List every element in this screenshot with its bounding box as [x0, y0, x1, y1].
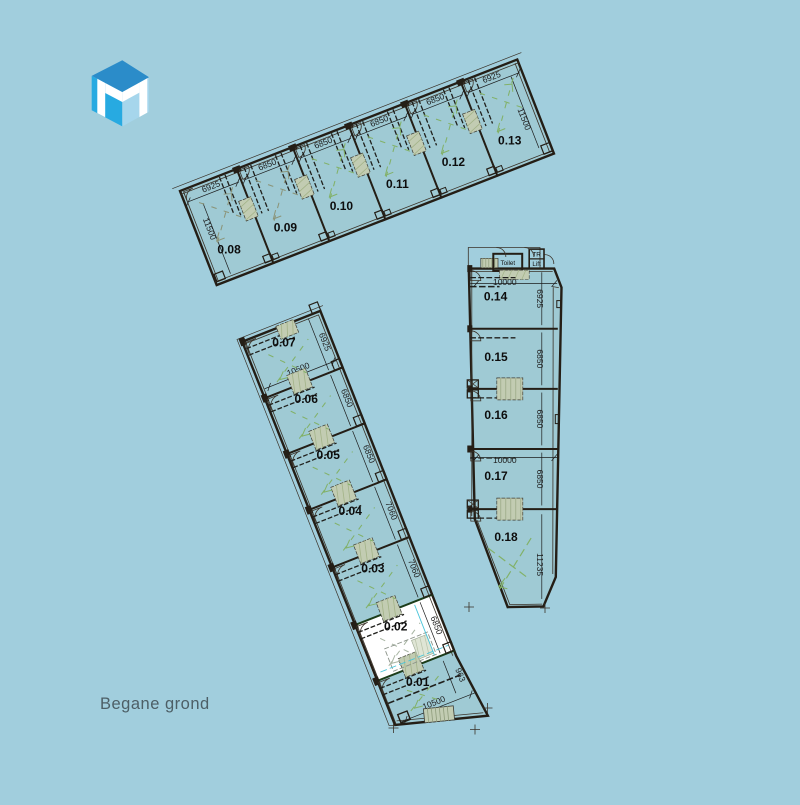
svg-text:Toilet: Toilet — [500, 260, 515, 267]
svg-text:0.06: 0.06 — [295, 392, 319, 406]
svg-text:Lift: Lift — [532, 261, 541, 268]
svg-text:0.16: 0.16 — [484, 408, 508, 422]
svg-text:0.14: 0.14 — [484, 290, 508, 304]
svg-text:0.12: 0.12 — [442, 155, 466, 169]
svg-text:0.09: 0.09 — [274, 221, 298, 235]
svg-text:0.10: 0.10 — [330, 199, 354, 213]
svg-text:0.17: 0.17 — [484, 469, 508, 483]
svg-text:6850: 6850 — [535, 349, 545, 368]
svg-text:0.07: 0.07 — [272, 336, 296, 350]
svg-text:Begane grond: Begane grond — [100, 695, 210, 713]
svg-text:10000: 10000 — [493, 455, 517, 465]
svg-text:11235: 11235 — [535, 553, 545, 576]
svg-text:0.18: 0.18 — [494, 530, 518, 544]
svg-text:0.01: 0.01 — [406, 675, 430, 689]
svg-text:0.04: 0.04 — [339, 504, 363, 518]
svg-text:0.02: 0.02 — [384, 619, 408, 633]
svg-text:6925: 6925 — [535, 289, 545, 308]
svg-text:6850: 6850 — [535, 409, 545, 428]
svg-text:0.15: 0.15 — [484, 350, 508, 364]
svg-text:0.05: 0.05 — [317, 448, 341, 462]
svg-text:10000: 10000 — [493, 277, 517, 287]
svg-text:0.08: 0.08 — [217, 243, 241, 257]
svg-text:0.03: 0.03 — [361, 562, 385, 576]
svg-text:0.11: 0.11 — [386, 177, 409, 191]
svg-text:6850: 6850 — [535, 470, 545, 489]
svg-text:0.13: 0.13 — [498, 133, 522, 147]
